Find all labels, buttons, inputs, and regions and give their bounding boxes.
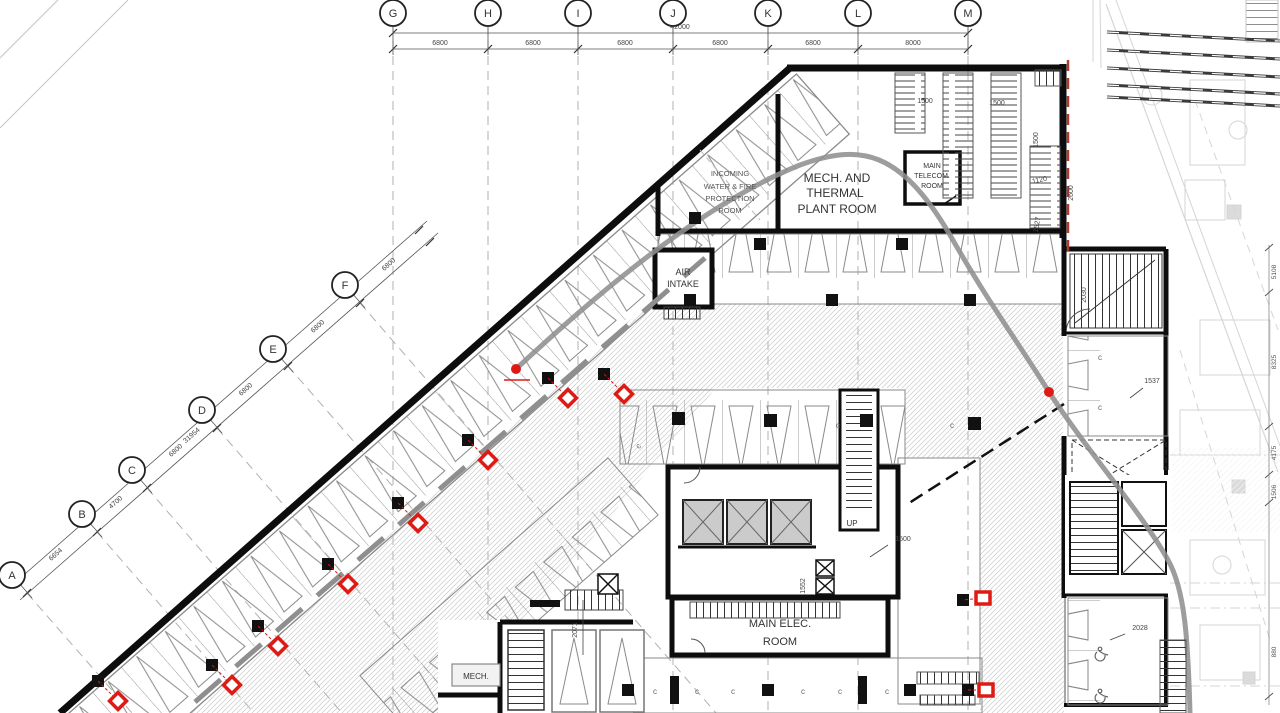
parking-row-top [658,234,1062,304]
air-intake-label: AIR [675,267,691,277]
dim-5108: 5108 [1271,264,1278,279]
compact-stall-label: c [695,687,699,696]
top-grid: 42000 6800 6800 6800 6800 6800 8000 G H … [380,0,981,55]
dim-1506: 1506 [1271,484,1278,499]
telecom-room-label: MAIN [923,163,941,170]
dim-1537: 1537 [1144,378,1160,385]
grid-bubbles-top: G H I J K L M [380,0,981,26]
grid-bubble-F: F [342,280,349,292]
parking-row-east-compact-top [1068,336,1168,436]
floor-plan-canvas: INCOMING WATER & FIRE PROTECTION ROOM ME… [0,0,1280,713]
mech-thermal-room-label: PLANT ROOM [797,202,876,216]
compact-stall-label: c [950,421,954,430]
segment-dim: 4700 [108,495,124,511]
segment-dim: 6654 [48,547,64,563]
incoming-room-label: WATER & FIRE [704,182,757,191]
dim-2030: 2030 [1081,287,1088,303]
grid-bubble-E: E [269,344,276,356]
segment-dim: 6800 [525,40,541,47]
segment-dim: 6800 [168,443,184,459]
rack-along-curve [1160,640,1186,713]
compact-stall-label: c [801,687,805,696]
compact-stall-label: c [1098,403,1102,412]
main-elec-room-label: MAIN ELEC. [749,618,811,630]
mech-thermal-room-label: MECH. AND [804,171,871,185]
compact-stall-label: c [1098,353,1102,362]
compact-stall-label: c [731,687,735,696]
compact-stall-label: c [885,687,889,696]
mech-thermal-room-label: THERMAL [806,186,864,200]
grid-bubble-A: A [8,570,16,582]
red-dot-marker [511,364,521,374]
shaft-box [598,574,618,594]
segment-dim: 6800 [805,40,821,47]
dim-2028: 2028 [1132,625,1148,632]
site-boundary-lines [0,0,128,128]
grid-bubble-B: B [78,509,85,521]
elec-panels [690,602,840,618]
telecom-room-label: TELECOM. [914,173,950,180]
stair-mech [508,630,544,710]
dim-1552: 1552 [800,578,807,594]
compact-stall-label: c [838,687,842,696]
grid-bubble-D: D [198,405,206,417]
dim-4175: 4175 [1271,445,1278,460]
air-intake-label: INTAKE [667,279,699,289]
bike-rack [920,695,975,705]
floor-plan-drawing: INCOMING WATER & FIRE PROTECTION ROOM ME… [0,0,1280,713]
segment-dim: 8000 [905,40,921,47]
dim-8325: 8325 [1271,354,1278,369]
segment-dim: 6800 [617,40,633,47]
grid-bubble-G: G [389,8,398,20]
dim-1500: 1500 [989,100,1005,107]
telecom-room-label: ROOM [921,183,943,190]
grid-bubble-K: K [764,8,772,20]
dim-2071: 2071 [572,622,579,638]
compact-stall-label: c [653,687,657,696]
segment-dim: 6800 [712,40,728,47]
segment-dim: 6800 [238,382,254,398]
grid-bubble-J: J [670,8,676,20]
grid-bubble-C: C [128,465,136,477]
grid-bubble-H: H [484,8,492,20]
overall-dim-diagonal: 31954 [182,427,201,445]
mech-small-label: MECH. [463,672,489,681]
grid-bubble-I: I [576,8,579,20]
dim-1500: 1500 [895,536,911,543]
railway-tracks [1107,0,1280,106]
red-dot-marker [1044,387,1054,397]
compact-stall-label: c [836,421,840,430]
background-stair [1246,0,1278,42]
dim-1500: 1500 [917,98,933,105]
incoming-room-label: ROOM [718,206,741,215]
main-elec-room-label: ROOM [763,636,797,648]
bike-rack [917,672,979,684]
incoming-room-label: PROTECTION [705,194,754,203]
grid-bubble-L: L [855,8,861,20]
incoming-room-label: INCOMING [711,169,749,178]
segment-dim: 6800 [432,40,448,47]
dim-2600: 2600 [1068,185,1075,201]
grid-bubble-M: M [963,8,972,20]
dim-1500: 1500 [1033,132,1040,148]
stair-core [840,390,878,530]
dim-880: 880 [1271,646,1278,657]
parking-row-east-accessible-top [1068,598,1168,705]
up-label: UP [846,519,857,528]
